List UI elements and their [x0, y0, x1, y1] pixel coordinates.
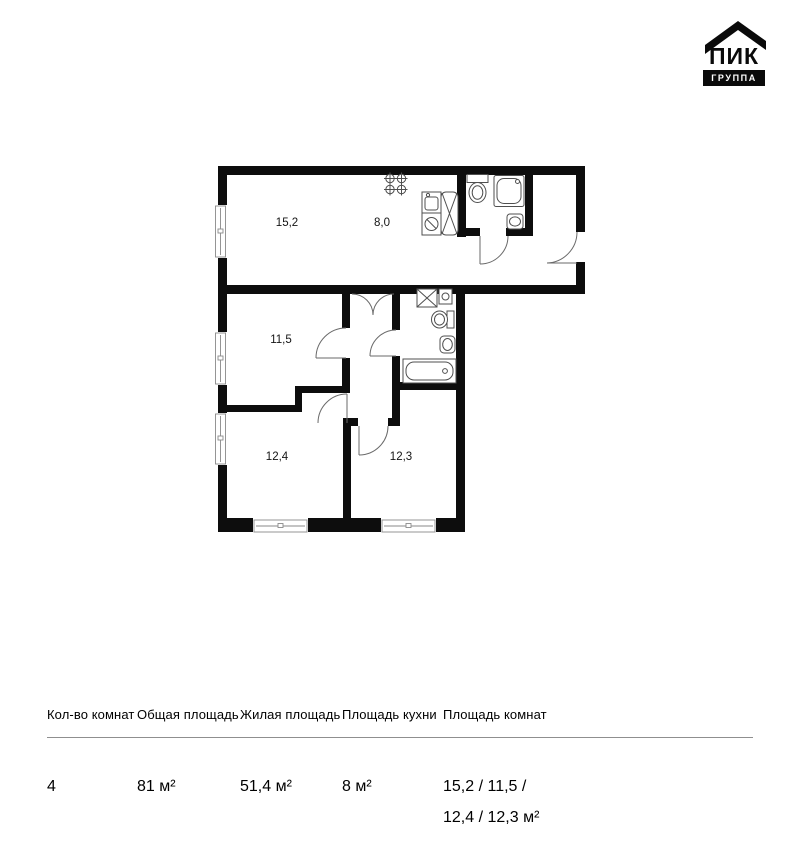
bedroom1-door-arc — [316, 328, 346, 358]
spec-header: Площадь комнат — [443, 707, 593, 722]
wall-bath1-bottom-left — [466, 228, 480, 236]
dishwasher-icon — [422, 213, 441, 235]
toilet2-icon — [432, 311, 455, 328]
bathroom1-fixtures — [467, 175, 524, 230]
wall-hall-bottom-right — [388, 418, 400, 426]
kitchen-fixtures — [384, 173, 458, 236]
room-area-label: 12,3 — [390, 451, 412, 463]
room-area-label: 11,5 — [270, 334, 292, 346]
spec-value: 4 — [47, 771, 56, 802]
bathroom2-fixtures — [403, 289, 456, 383]
entry-opening — [576, 232, 585, 262]
toilet-icon — [467, 175, 488, 203]
spec-col-room-areas: Площадь комнат 15,2 / 11,5 /12,4 / 12,3 … — [443, 707, 593, 722]
stove-icon — [384, 173, 408, 196]
wall-room11-bottom — [218, 405, 302, 412]
sink2-icon — [440, 336, 455, 353]
spec-value: 8 м² — [342, 771, 372, 802]
sink-icon — [507, 214, 523, 229]
wall-room11-bottom-right — [295, 386, 350, 393]
wall-right-upper — [576, 166, 585, 294]
fridge-icon — [441, 192, 458, 235]
spec-value: 51,4 м² — [240, 771, 292, 802]
room-area-labels: 15,2 8,0 11,5 12,4 12,3 — [266, 217, 412, 463]
bedroom2-door-arc — [318, 394, 347, 423]
floorplan-page: { "logo": { "brand": "ПИК", "group": "ГР… — [0, 0, 800, 850]
kitchen-sink-icon — [422, 192, 441, 213]
room-area-label: 15,2 — [276, 217, 298, 229]
spec-value: 15,2 / 11,5 /12,4 / 12,3 м² — [443, 771, 539, 833]
room-area-label: 12,4 — [266, 451, 289, 463]
wall-bath1-right — [525, 175, 533, 236]
wall-hall-left-upper — [342, 294, 350, 328]
apartment-spec-table: Кол-во комнат 4 Общая площадь 81 м² Жила… — [0, 0, 800, 140]
walls — [218, 166, 585, 532]
room-area-label: 8,0 — [374, 217, 390, 229]
bath2-door-arc — [370, 330, 396, 356]
wall-band-bottom — [218, 285, 585, 294]
wall-right-lower — [456, 294, 465, 532]
table-divider — [47, 737, 753, 738]
entry-door-arc — [547, 232, 577, 263]
washing-machine-icon — [417, 289, 437, 307]
bedroom3-door-arc — [359, 426, 388, 455]
double-door-right-arc — [373, 294, 394, 315]
bath1-door-arc — [480, 236, 508, 264]
bathtub-icon — [403, 359, 456, 383]
spec-value: 81 м² — [137, 771, 176, 802]
double-door-left-arc — [352, 294, 373, 315]
wall-rooms-divider — [343, 418, 351, 532]
wall-hall-right-upper — [392, 294, 400, 330]
shower-icon — [494, 176, 524, 207]
boiler-icon — [439, 289, 452, 304]
